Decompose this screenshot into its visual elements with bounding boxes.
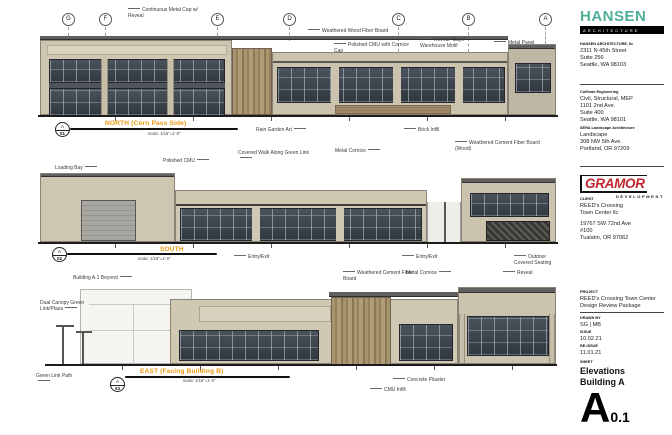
north-elevation-drawing <box>40 36 556 115</box>
callout-metal-cornice: Metal Cornice <box>406 270 458 276</box>
callout-polished-cmu: Polished CMU <box>163 158 221 164</box>
storefront-window-band <box>180 208 422 241</box>
wall-pier <box>336 208 344 241</box>
sheet-number: A 0.1 <box>580 388 630 428</box>
callout-cmu-infill: CMU Infill <box>370 387 416 393</box>
south-elevation-scale: scale: 1/16"=1'-0" <box>138 256 171 261</box>
north-left-building <box>40 40 232 115</box>
reissue-date: 11.01.21 <box>580 350 601 357</box>
callout-green-link: Green Link Path <box>36 373 74 386</box>
sheet-number-letter: A <box>580 388 610 428</box>
firm-line: Portland, OR 97209 <box>580 146 635 153</box>
callout-rain-garden: Rain Garden Art <box>256 127 318 133</box>
wall-pier <box>393 67 401 103</box>
east-main-building <box>170 299 458 364</box>
east-elevation-marker: A 03 <box>110 377 125 392</box>
brick-infill-band <box>335 105 451 114</box>
cmu-pilaster <box>167 59 174 116</box>
address-line: #100 <box>580 228 631 235</box>
window-band <box>467 316 549 356</box>
firm-line: Civil, Structural, MEP <box>580 96 633 103</box>
south-elevation-drawing <box>40 170 556 242</box>
consultant-landscape: SERA Landscape Architecture Landscape 30… <box>580 126 635 153</box>
hansen-logo-text: HANSEN <box>580 8 664 25</box>
south-left-building <box>40 173 175 242</box>
drawn-by-label: DRAWN BY <box>580 316 601 320</box>
north-elevation-scale: scale: 1/16"=1'-0" <box>148 131 181 136</box>
canopy-top <box>76 331 92 333</box>
south-right-building <box>461 178 556 242</box>
client-address: 19767 SW 72nd Ave #100 Tualatin, OR 9706… <box>580 221 631 242</box>
wall-pier <box>455 67 463 103</box>
cornice-cap <box>462 179 555 183</box>
consultant-civil: Coffman Engineering Civil, Structural, M… <box>580 90 633 124</box>
firm-heading: Coffman Engineering <box>580 90 633 94</box>
callout-outdoor-seating: Outdoor Covered Seating <box>514 254 566 267</box>
grid-bubble-a: A <box>539 13 552 26</box>
drawing-sheet: G F E D C B A <box>0 0 672 435</box>
callout-loading-bay: Loading Bay <box>55 165 105 171</box>
firm-line: Suite 400 <box>580 110 633 117</box>
firm-line: Seattle, WA 98101 <box>580 117 633 124</box>
marker-number: 02 <box>53 256 66 262</box>
project-block: PROJECT REED's Crossing Town Center Desi… <box>580 290 656 310</box>
window <box>515 63 551 93</box>
marker-letter: A <box>111 378 124 386</box>
firm-line: Landscape <box>580 132 635 139</box>
grid-bubble-f: F <box>99 13 112 26</box>
callout-brick-infill: Brick Infill <box>404 127 452 133</box>
wood-fiber-panel <box>232 48 272 115</box>
window-band <box>277 67 505 103</box>
grid-bubble-d: D <box>283 13 296 26</box>
east-elevation-drawing <box>58 283 556 364</box>
firm-heading: HANSEN ARCHITECTURE, llc <box>580 42 633 46</box>
covered-walk-opening <box>427 202 461 242</box>
address-line: Tualatin, OR 97062 <box>580 235 631 242</box>
callout-polished-cmu: Polished CMU with Cornice Cap <box>334 42 416 55</box>
firm-line: 1101 2nd Ave. <box>580 103 633 110</box>
storefront-window-band <box>179 330 319 361</box>
issue-label: ISSUE <box>580 330 602 334</box>
south-title-line <box>67 253 217 255</box>
developer-logo: GRAMOR DEVELOPMENT <box>580 175 664 199</box>
callout-building-beyond: Building A.1 Beyond <box>73 275 145 281</box>
reissue-label: RE-ISSUE <box>580 344 601 348</box>
faded-line <box>133 304 134 364</box>
callout-cement-fiber: Weathered Cement Fiber Board (Wood) <box>455 140 545 153</box>
grid-line <box>105 27 106 36</box>
canopy-post <box>62 327 64 364</box>
canopy-post <box>82 333 84 364</box>
callout-metal-cap: Continuous Metal Cap w/ Reveal <box>128 7 200 20</box>
south-elevation-marker: A 02 <box>52 247 67 262</box>
callout-entry-exit-1: Entry/Exit <box>234 254 282 260</box>
cornice-cap <box>459 288 555 293</box>
south-ground-ticks <box>38 244 558 248</box>
client-block: CLIENT REED's Crossing Town Center llc <box>580 197 623 217</box>
callout-metal-panel: Metal Panel <box>494 40 542 46</box>
gramor-logo-text: GRAMOR <box>580 175 647 193</box>
callout-metal-cornice: Metal Cornice <box>335 148 393 154</box>
wood-fiber-panel <box>331 297 391 365</box>
firm-heading: SERA Landscape Architecture <box>580 126 635 130</box>
grid-bubble-c: C <box>392 13 405 26</box>
callout-cement-fiber: Weathered Cement Fiber Board <box>343 270 415 283</box>
grid-bubble-g: G <box>62 13 75 26</box>
marker-number: 03 <box>111 386 124 392</box>
hansen-logo-subtext: ARCHITECTURE <box>580 26 664 34</box>
firm-line: Seattle, WA 98103 <box>580 62 633 69</box>
south-mid-building <box>175 190 427 242</box>
cmu-pilaster <box>101 59 108 116</box>
east-elevation-scale: scale: 1/16"=1'-0" <box>183 378 216 383</box>
concrete-pilaster <box>549 314 555 363</box>
cornice-cap <box>41 174 174 177</box>
marker-letter: A <box>56 123 69 131</box>
grid-line <box>217 27 218 36</box>
cornice-line <box>273 61 507 63</box>
address-line: 19767 SW 72nd Ave <box>580 221 631 228</box>
marker-letter: A <box>53 248 66 256</box>
north-mid-building <box>272 52 508 115</box>
sheet-label: SHEET <box>580 360 625 364</box>
east-ground-ticks <box>45 366 557 370</box>
client-line: Town Center llc <box>580 210 623 217</box>
recessed-panel <box>199 306 331 322</box>
window-band <box>399 324 453 361</box>
issue-block: ISSUE 10.02.21 <box>580 330 602 343</box>
divider <box>580 312 664 313</box>
drawn-by-value: SG | MB <box>580 322 601 329</box>
issue-date: 10.02.21 <box>580 336 602 343</box>
project-line: Design Review Package <box>580 303 656 310</box>
client-label: CLIENT <box>580 197 623 201</box>
architect-info: HANSEN ARCHITECTURE, llc 2311 N 45th Str… <box>580 42 633 69</box>
loading-bay-door <box>81 200 136 241</box>
divider <box>580 84 664 85</box>
sheet-title-line: Elevations <box>580 366 625 377</box>
project-line: REED's Crossing Town Center <box>580 296 656 303</box>
callout-concrete-pilaster: Concrete Pilaster <box>393 377 453 383</box>
drawn-by-block: DRAWN BY SG | MB <box>580 316 601 329</box>
firm-line: Suite 256 <box>580 55 633 62</box>
callout-entry-exit-2: Entry/Exit <box>402 254 450 260</box>
canopy-line <box>176 204 426 206</box>
marker-number: 01 <box>56 131 69 137</box>
east-elevation-title: EAST (Facing Building B) <box>140 368 224 375</box>
project-label: PROJECT <box>580 290 656 294</box>
walk-post <box>444 202 446 242</box>
concrete-pilaster <box>459 314 465 363</box>
window-band <box>470 193 549 217</box>
north-title-line <box>70 128 238 130</box>
wall-pier <box>331 67 339 103</box>
storefront-window-band <box>49 88 225 116</box>
grid-bubble-e: E <box>211 13 224 26</box>
canopy-top <box>56 325 74 327</box>
callout-dual-canopy: Dual Canopy Green Link/Plaza <box>40 300 96 313</box>
firm-line: 2311 N 45th Street <box>580 48 633 55</box>
callout-reveal: Reveal <box>503 270 541 276</box>
sheet-number-decimal: 0.1 <box>610 409 629 425</box>
callout-reveal-bays: Reveal "Bays" Warehouse Motif <box>420 37 478 50</box>
grid-line <box>68 27 69 36</box>
grid-bubble-b: B <box>462 13 475 26</box>
north-elevation-title: NORTH (Corn Pass Side) <box>105 120 186 127</box>
divider <box>580 166 664 167</box>
wall-pier <box>252 208 260 241</box>
reissue-block: RE-ISSUE 11.01.21 <box>580 344 601 357</box>
title-block-sidebar: HANSEN ARCHITECTURE HANSEN ARCHITECTURE,… <box>580 0 666 435</box>
architect-logo: HANSEN ARCHITECTURE <box>580 8 664 34</box>
callout-covered-walk: Covered Walk Along Green Link <box>238 150 310 163</box>
client-line: REED's Crossing <box>580 203 623 210</box>
frieze-band <box>47 45 227 55</box>
callout-wood-fiber: Weathered Wood Fiber Board <box>308 28 428 34</box>
firm-line: 308 NW 5th Ave. <box>580 139 635 146</box>
north-elevation-marker: A 01 <box>55 122 70 137</box>
art-screen <box>486 221 550 241</box>
south-elevation-title: SOUTH <box>160 246 184 253</box>
east-right-building <box>458 287 556 364</box>
upper-window-band <box>49 59 225 83</box>
north-right-building <box>508 44 556 115</box>
